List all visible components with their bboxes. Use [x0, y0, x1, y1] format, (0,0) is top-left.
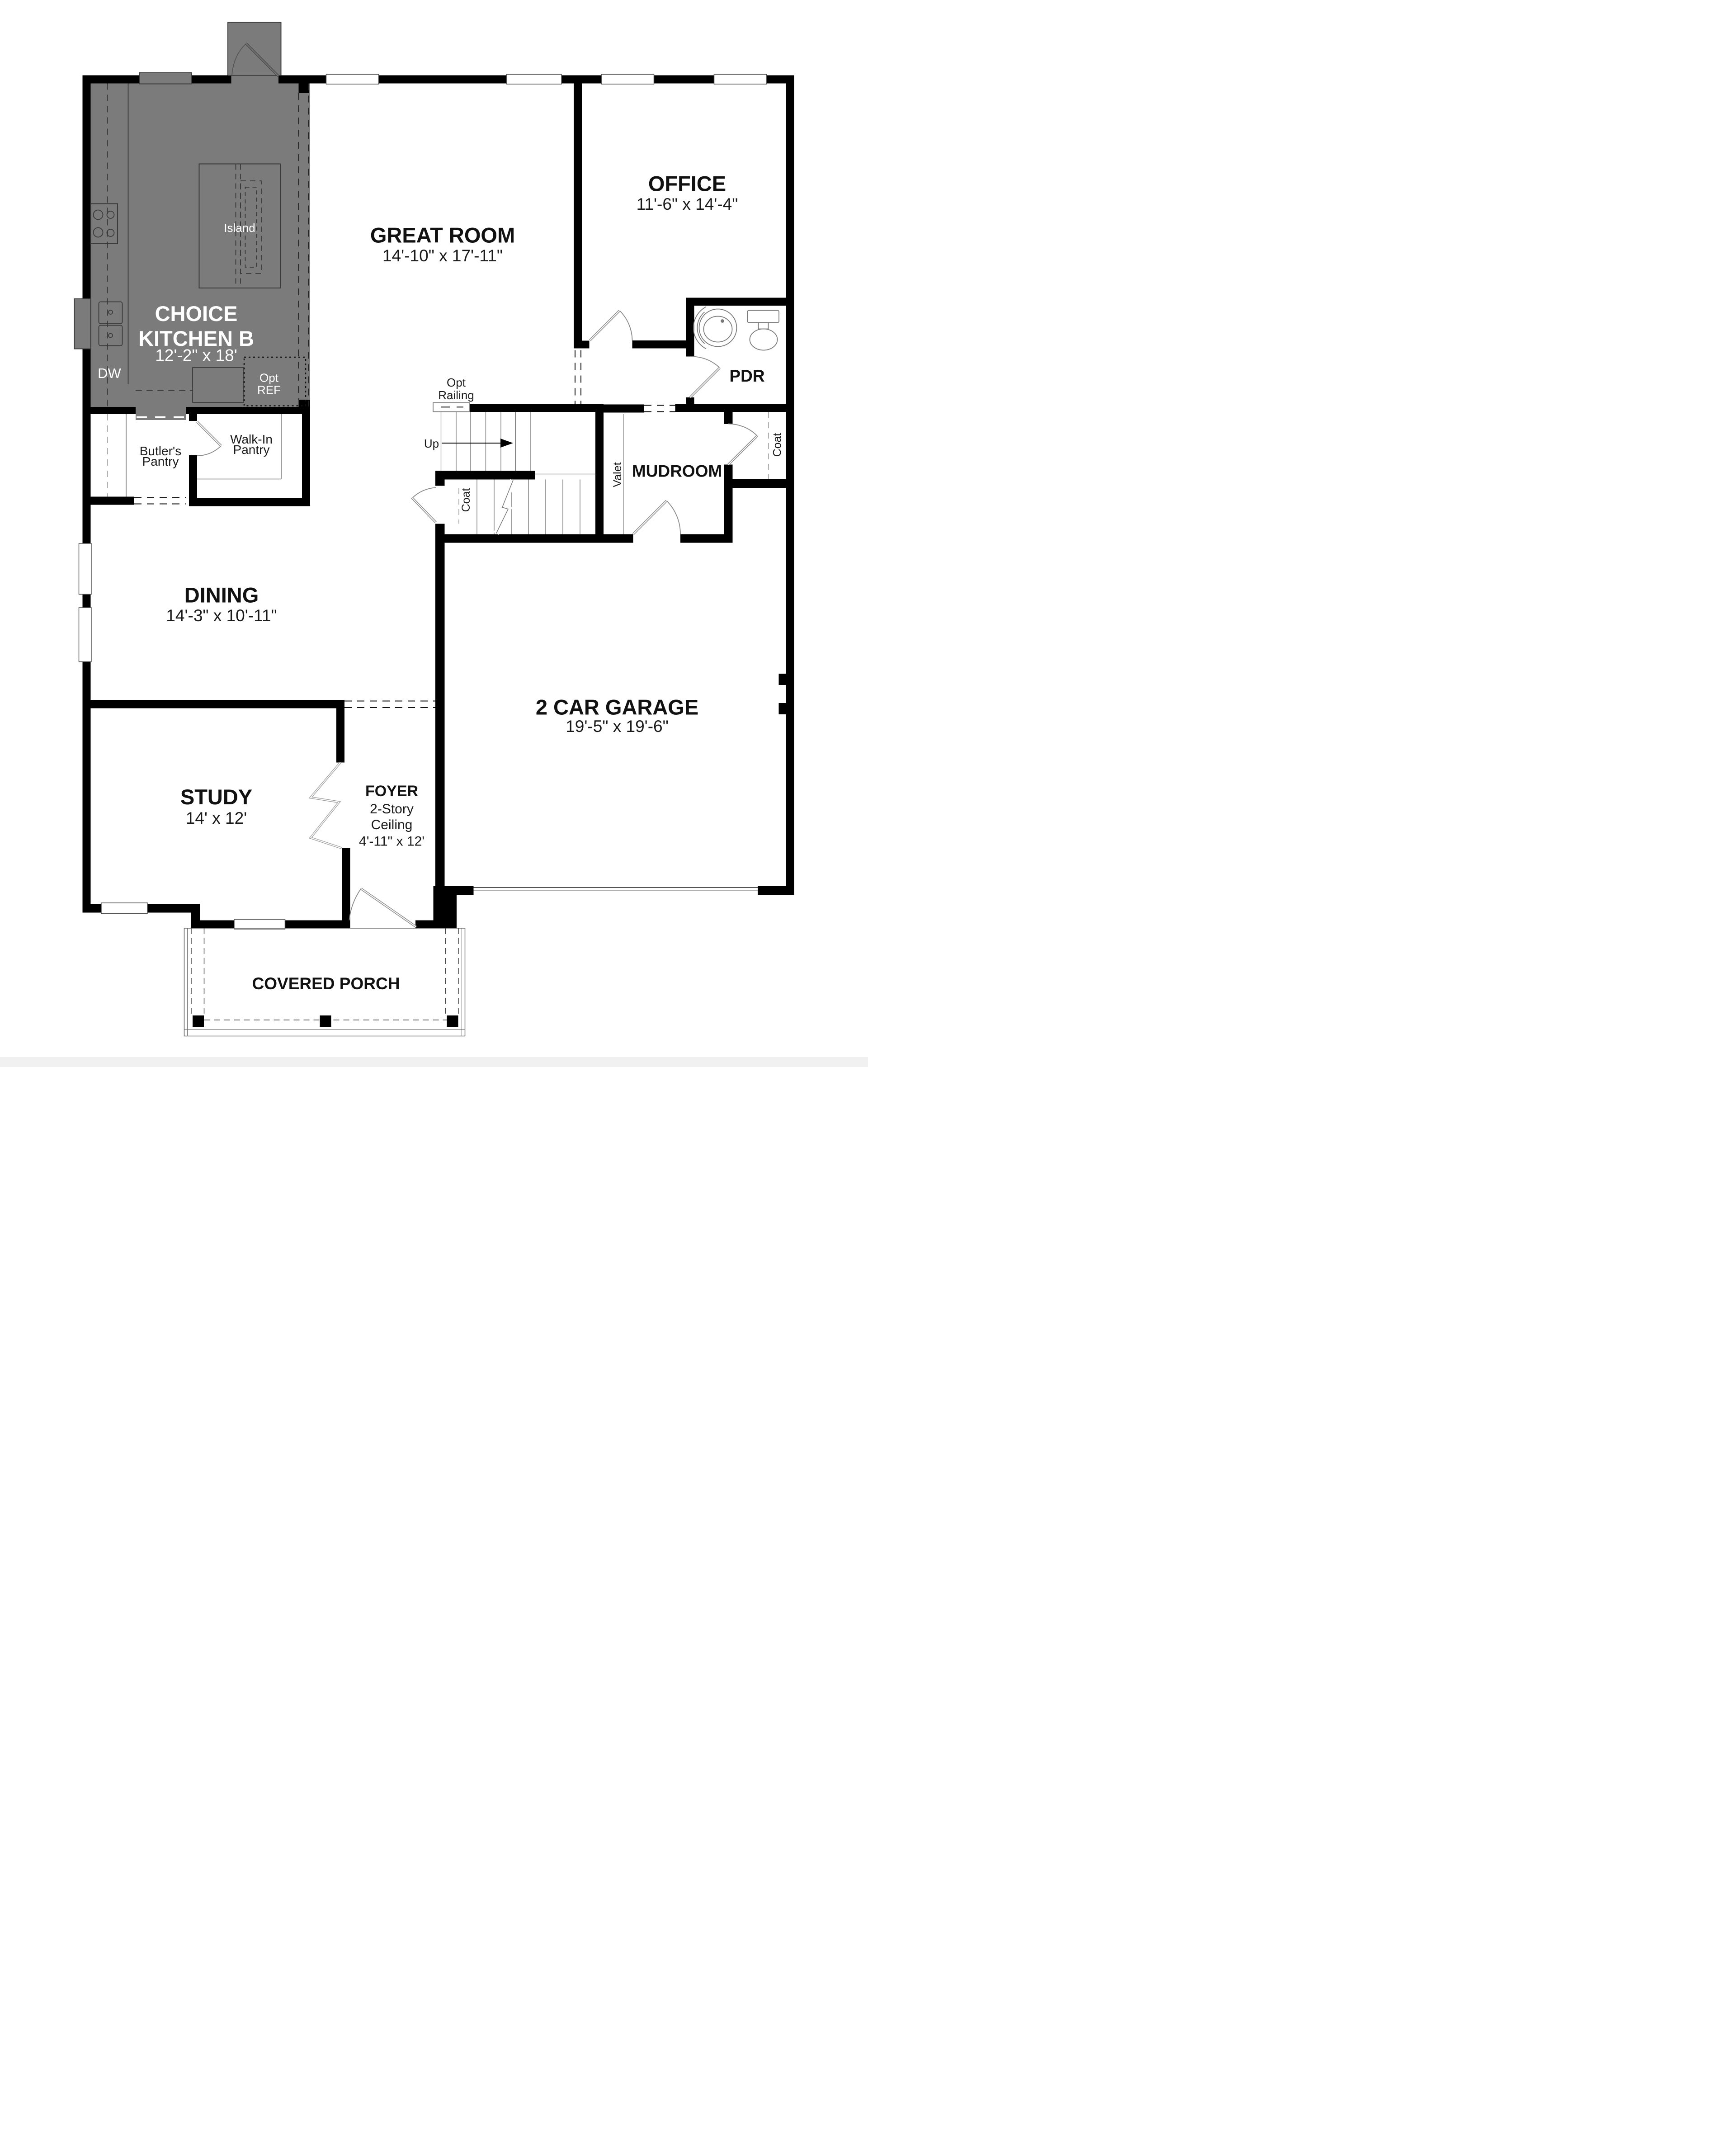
svg-text:14'-3" x 10'-11": 14'-3" x 10'-11" — [166, 606, 277, 625]
svg-text:Opt: Opt — [259, 371, 279, 385]
svg-text:Valet: Valet — [611, 462, 624, 487]
svg-text:Railing: Railing — [438, 388, 474, 402]
svg-text:Ceiling: Ceiling — [371, 817, 413, 832]
svg-text:11'-6" x 14'-4": 11'-6" x 14'-4" — [637, 195, 738, 213]
svg-text:DINING: DINING — [184, 583, 259, 607]
svg-text:2 CAR GARAGE: 2 CAR GARAGE — [536, 695, 698, 719]
svg-text:OFFICE: OFFICE — [648, 172, 726, 196]
svg-text:2-Story: 2-Story — [370, 802, 414, 817]
svg-text:12'-2" x 18': 12'-2" x 18' — [155, 346, 237, 365]
svg-text:GREAT ROOM: GREAT ROOM — [370, 223, 515, 247]
svg-text:14' x 12': 14' x 12' — [186, 809, 247, 827]
svg-text:MUDROOM: MUDROOM — [632, 462, 722, 481]
svg-text:14'-10" x 17'-11": 14'-10" x 17'-11" — [382, 246, 503, 265]
svg-text:PDR: PDR — [729, 367, 764, 385]
svg-text:4'-11" x 12': 4'-11" x 12' — [359, 834, 425, 849]
svg-text:CHOICE: CHOICE — [155, 302, 238, 326]
svg-text:Pantry: Pantry — [233, 443, 270, 457]
svg-text:Coat: Coat — [460, 488, 472, 512]
svg-text:19'-5" x 19'-6": 19'-5" x 19'-6" — [566, 717, 669, 736]
svg-text:DW: DW — [98, 365, 121, 381]
svg-text:Island: Island — [224, 221, 255, 235]
svg-text:Coat: Coat — [771, 433, 784, 457]
svg-text:Up: Up — [424, 437, 439, 450]
svg-text:STUDY: STUDY — [180, 785, 252, 809]
svg-text:COVERED PORCH: COVERED PORCH — [252, 974, 400, 993]
svg-text:FOYER: FOYER — [365, 783, 418, 800]
svg-text:REF: REF — [257, 383, 281, 397]
svg-text:Opt: Opt — [447, 376, 466, 389]
svg-text:Pantry: Pantry — [142, 454, 179, 468]
